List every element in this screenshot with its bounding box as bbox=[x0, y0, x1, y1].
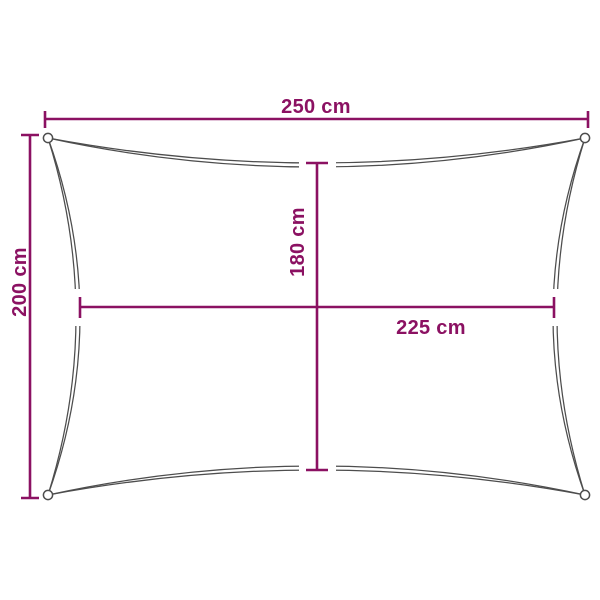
dimension-outer-width: 250 cm bbox=[45, 96, 588, 128]
dim-label-outer-width: 250 cm bbox=[281, 96, 351, 118]
grommet-top-right-icon bbox=[580, 133, 589, 142]
grommet-bottom-right-icon bbox=[580, 490, 589, 499]
grommet-bottom-left-icon bbox=[43, 490, 52, 499]
dim-label-inner-height: 180 cm bbox=[287, 207, 309, 277]
shade-sail-drawing: 250 cm 200 cm 180 cm 225 cm bbox=[0, 0, 600, 600]
grommet-top-left-icon bbox=[43, 133, 52, 142]
dimension-inner-height: 180 cm bbox=[287, 163, 328, 470]
dim-label-outer-height: 200 cm bbox=[9, 247, 31, 317]
dimension-outer-height: 200 cm bbox=[9, 135, 39, 498]
dim-label-inner-width: 225 cm bbox=[396, 317, 466, 339]
dimension-diagram: 250 cm 200 cm 180 cm 225 cm bbox=[0, 0, 600, 600]
